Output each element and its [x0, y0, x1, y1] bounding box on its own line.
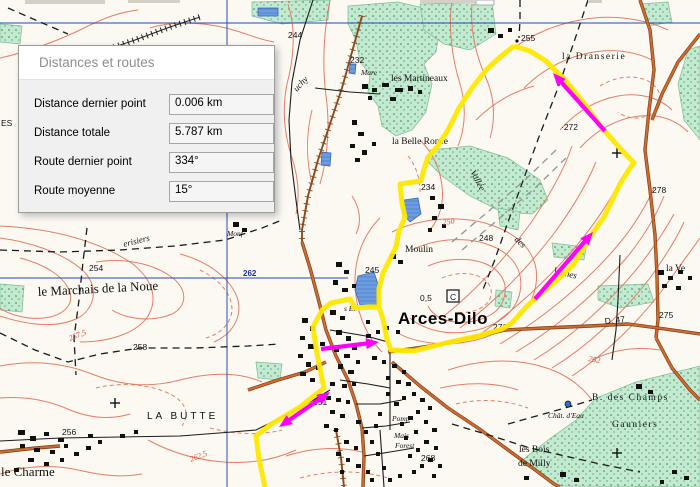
row-distance-last-point: Distance dernier point 0.006 km: [19, 93, 274, 122]
dialog-titlebar[interactable]: Distances et routes: [19, 46, 274, 80]
distance-total-field[interactable]: 5.787 km: [169, 123, 274, 144]
route-average-field[interactable]: 15°: [169, 181, 274, 202]
distance-total-label: Distance totale: [34, 127, 110, 139]
dialog-rows: Distance dernier point 0.006 km Distance…: [19, 93, 274, 209]
row-distance-total: Distance totale 5.787 km: [19, 122, 274, 151]
boxed-c-symbol: [447, 290, 459, 302]
water-tower-symbol: [565, 401, 571, 407]
route-last-point-field[interactable]: 334°: [169, 152, 274, 173]
distance-last-point-label: Distance dernier point: [34, 98, 146, 110]
app-window: C244232Mareles Martineauxla Belle Ronce2…: [0, 0, 700, 487]
route-last-point-label: Route dernier point: [34, 156, 132, 168]
row-route-last-point: Route dernier point 334°: [19, 151, 274, 180]
distance-last-point-field[interactable]: 0.006 km: [169, 94, 274, 115]
distances-dialog: Distances et routes Distance dernier poi…: [18, 45, 275, 213]
route-average-label: Route moyenne: [34, 185, 115, 197]
row-route-average: Route moyenne 15°: [19, 180, 274, 209]
dialog-title: Distances et routes: [39, 55, 155, 70]
